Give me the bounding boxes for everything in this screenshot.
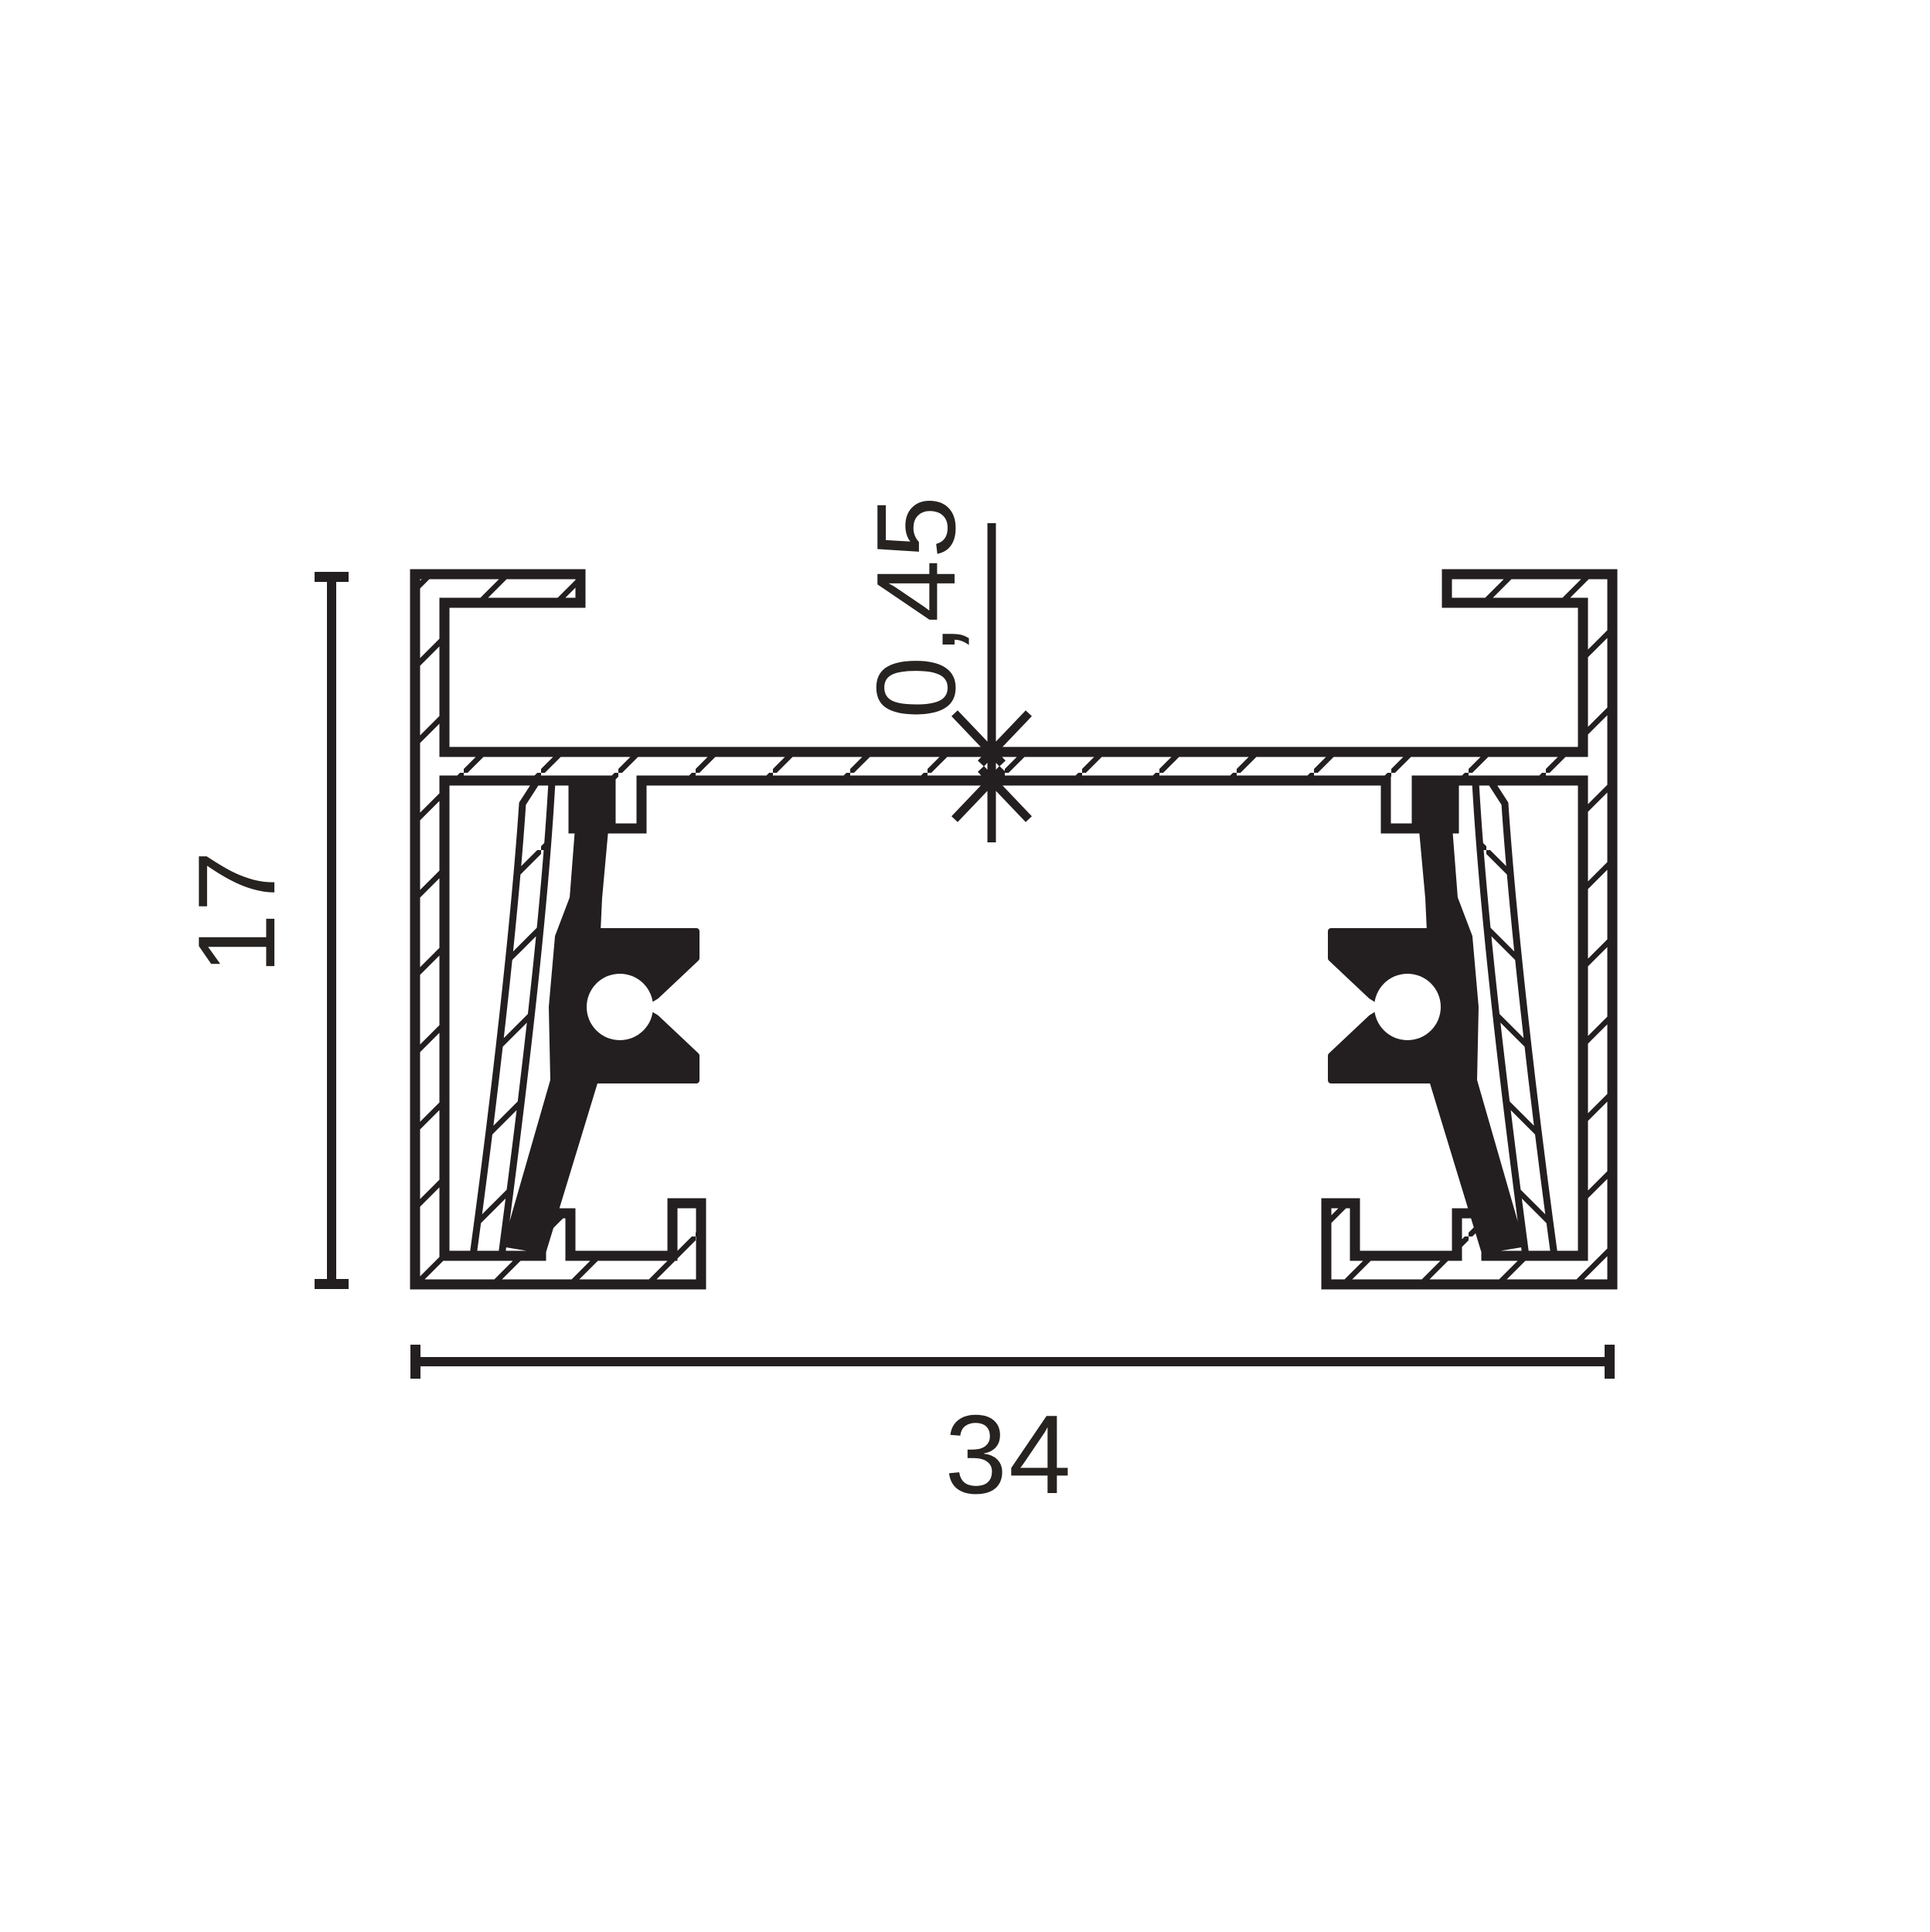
conductor-hole-left	[587, 974, 653, 1040]
dimension-width-tick-left	[410, 1345, 420, 1379]
dimension-width-label: 34	[945, 1392, 1072, 1517]
dimension-height-tick-bottom	[315, 1279, 349, 1289]
dimension-height: 17	[175, 572, 349, 1289]
conductor-hole-right	[1374, 974, 1441, 1040]
technical-drawing-canvas: 17 34 0,45	[0, 0, 1930, 1932]
dimension-height-label: 17	[175, 849, 298, 975]
dimension-height-tick-top	[315, 572, 349, 582]
dimension-web-thickness: 0,45	[853, 495, 1029, 842]
dimension-width: 34	[410, 1345, 1615, 1517]
profile-cross-section-drawing: 17 34 0,45	[0, 0, 1930, 1932]
dimension-width-tick-right	[1605, 1345, 1615, 1379]
dimension-web-label: 0,45	[853, 495, 979, 719]
